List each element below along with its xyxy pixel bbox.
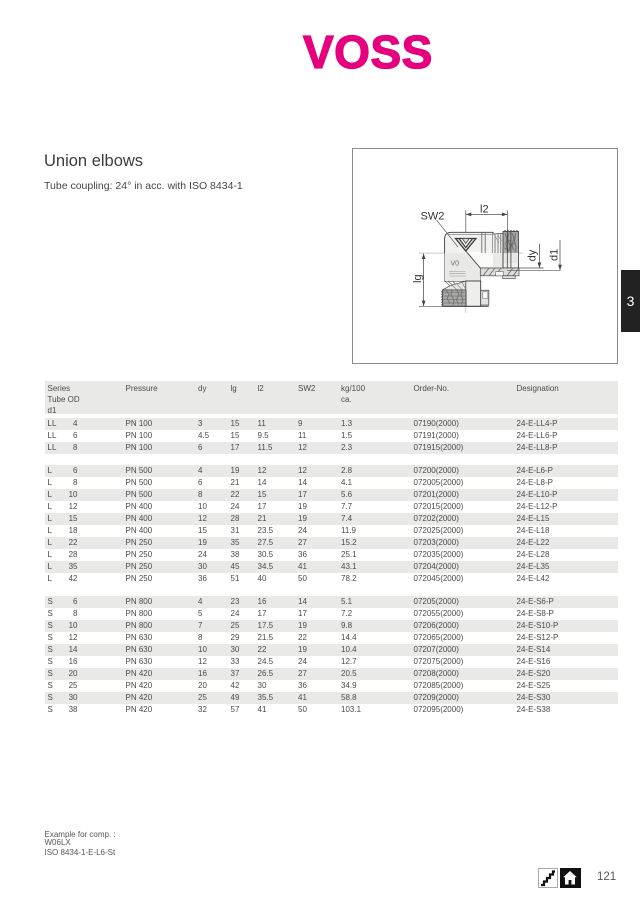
svg-text:l2: l2: [480, 204, 489, 216]
svg-text:V0: V0: [451, 261, 460, 268]
svg-text:SW2: SW2: [421, 210, 445, 222]
svg-text:d1: d1: [548, 249, 560, 261]
svg-text:lg: lg: [412, 274, 424, 283]
svg-text:dy: dy: [526, 249, 538, 261]
